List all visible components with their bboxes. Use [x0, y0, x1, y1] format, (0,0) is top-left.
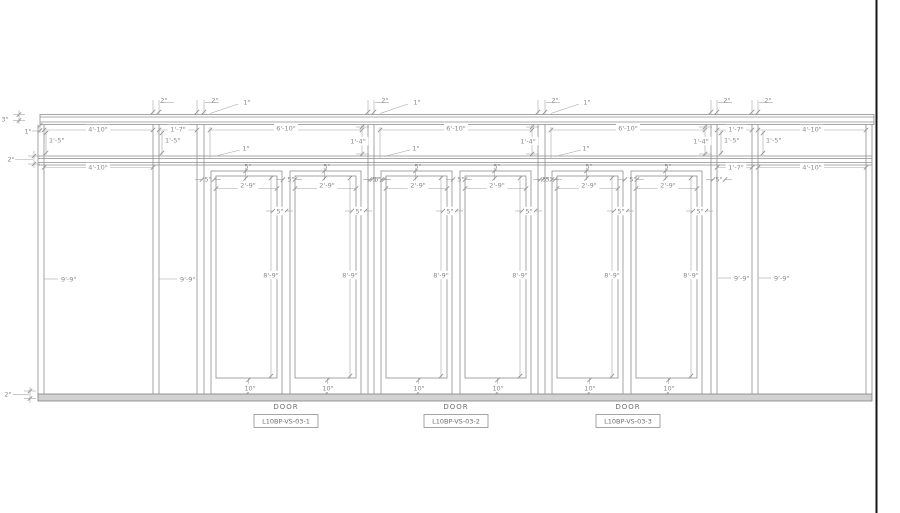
- dim-label: 5": [287, 175, 294, 183]
- door-label: DOOR: [615, 403, 640, 411]
- dim-label: 1": [24, 127, 31, 135]
- dim-label: 5": [323, 162, 330, 170]
- door-leaf: [211, 171, 282, 394]
- dim-label: 2": [211, 96, 218, 104]
- dim-label: 2": [551, 96, 558, 104]
- dim-label: 5": [617, 207, 624, 215]
- dim-label: 5": [696, 207, 703, 215]
- dim-label: 1": [413, 98, 420, 106]
- dim-label: 4'-10": [88, 163, 108, 171]
- dim-label: 2'-9": [240, 181, 255, 189]
- dim-label: 1'-5": [49, 136, 64, 144]
- dim-label: 5": [525, 207, 532, 215]
- dim-label: 2'-9": [319, 181, 334, 189]
- dim-label: 1'-5": [165, 136, 180, 144]
- dim-label: 10": [244, 384, 255, 392]
- dim-label: 1'-4": [693, 137, 708, 145]
- dim-label: 1": [583, 98, 590, 106]
- dim-label: 6'-10": [446, 124, 466, 132]
- dim-label: 6'-10": [276, 124, 296, 132]
- door-leaf: [381, 171, 452, 394]
- dim-label: 5": [664, 162, 671, 170]
- storefront-elevation-drawing: 3"1"2"2"4'-10"1'-7"1'-7"4'-10"4'-10"1'-7…: [0, 0, 900, 513]
- dim-label: 1'-7": [170, 125, 185, 133]
- dim-label: 5": [374, 175, 381, 183]
- dim-label: 9'-9": [180, 275, 195, 283]
- dim-label: 2": [723, 96, 730, 104]
- dim-label: 2'-9": [489, 181, 504, 189]
- dim-label: 1'-5": [724, 136, 739, 144]
- door-leaf: [460, 171, 531, 394]
- dim-label: 8'-9": [263, 271, 278, 279]
- door-leaf: [552, 171, 623, 394]
- dim-label: 5": [457, 175, 464, 183]
- dim-label: 1'-4": [520, 137, 535, 145]
- dim-label: 10": [413, 384, 424, 392]
- dim-label: 8'-9": [512, 271, 527, 279]
- dim-label: 2'-9": [660, 181, 675, 189]
- door-tag: L10BP-VS-03-1: [262, 418, 310, 426]
- dim-label: 5": [629, 175, 636, 183]
- dim-label: 2'-9": [410, 181, 425, 189]
- dim-label: 9'-9": [774, 274, 789, 282]
- dim-label: 10": [322, 384, 333, 392]
- dim-label: 2": [4, 390, 11, 398]
- dim-label: 2": [7, 155, 14, 163]
- dim-label: 5": [715, 175, 722, 183]
- dim-label: 5": [204, 175, 211, 183]
- door-leaf: [631, 171, 702, 394]
- door-leaf: [290, 171, 361, 394]
- dim-label: 1": [242, 144, 249, 152]
- dim-label: 5": [355, 207, 362, 215]
- dim-leader: [384, 150, 410, 157]
- dim-label: 5": [244, 162, 251, 170]
- dim-label: 8'-9": [683, 271, 698, 279]
- dim-label: 5": [493, 162, 500, 170]
- dim-label: 4'-10": [88, 125, 108, 133]
- dim-label: 5": [545, 175, 552, 183]
- dim-label: 1": [582, 144, 589, 152]
- dim-label: 5": [446, 207, 453, 215]
- dim-leader: [555, 150, 581, 157]
- drawing-canvas: 3"1"2"2"4'-10"1'-7"1'-7"4'-10"4'-10"1'-7…: [0, 0, 900, 513]
- dim-label: 3": [1, 115, 8, 123]
- dim-leader: [551, 104, 579, 114]
- dim-label: 5": [414, 162, 421, 170]
- dim-label: 8'-9": [342, 271, 357, 279]
- dim-label: 9'-9": [734, 274, 749, 282]
- dim-leader: [210, 104, 238, 114]
- dim-label: 4'-10": [802, 163, 822, 171]
- dim-label: 4'-10": [802, 125, 822, 133]
- door-label: DOOR: [443, 403, 468, 411]
- dim-label: 10": [492, 384, 503, 392]
- dim-label: 8'-9": [433, 271, 448, 279]
- dim-label: 2'-9": [581, 181, 596, 189]
- dim-leader: [214, 150, 240, 157]
- door-tag: L10BP-VS-03-2: [432, 418, 480, 426]
- dim-label: 10": [584, 384, 595, 392]
- dim-label: 2": [764, 96, 771, 104]
- dim-label: 6'-10": [618, 124, 638, 132]
- dim-label: 2": [381, 96, 388, 104]
- door-tag: L10BP-VS-03-3: [604, 418, 652, 426]
- dim-label: 8'-9": [604, 271, 619, 279]
- door-label: DOOR: [273, 403, 298, 411]
- dim-label: 1": [243, 98, 250, 106]
- dim-label: 5": [585, 162, 592, 170]
- dim-label: 10": [663, 384, 674, 392]
- dim-label: 5": [276, 207, 283, 215]
- dim-label: 1": [412, 144, 419, 152]
- dim-label: 1'-7": [728, 125, 743, 133]
- dim-label: 2": [160, 96, 167, 104]
- sill: [38, 394, 872, 401]
- head-cap: [40, 115, 874, 125]
- dim-label: 9'-9": [61, 275, 76, 283]
- dim-label: 1'-4": [350, 137, 365, 145]
- dim-leader: [380, 104, 408, 114]
- dim-label: 1'-5": [766, 136, 781, 144]
- dim-label: 1'-7": [728, 163, 743, 171]
